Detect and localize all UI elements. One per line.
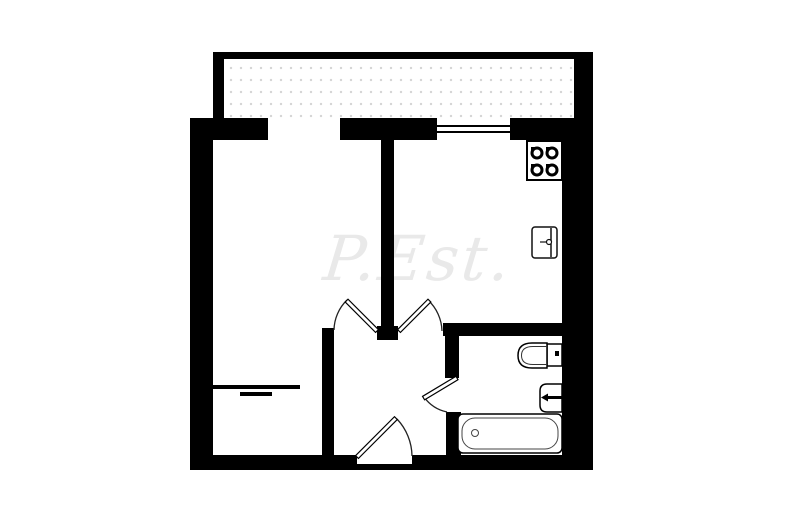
kitchen-sink-icon <box>532 227 557 258</box>
stove-icon <box>527 141 562 180</box>
door-leaf <box>398 299 431 332</box>
bathroom-door <box>423 376 458 412</box>
toilet-icon <box>518 343 562 368</box>
floor-plan: P.Est. <box>0 0 800 520</box>
entrance-door <box>356 417 412 459</box>
door-arc <box>397 419 412 456</box>
door-arc <box>428 300 442 331</box>
bathtub-icon <box>458 414 562 453</box>
door-leaf <box>423 376 458 400</box>
washbasin-icon <box>540 384 562 412</box>
door-leaf <box>345 299 378 332</box>
living-room-door <box>334 299 378 332</box>
kitchen-door <box>398 299 442 332</box>
door-leaf <box>356 417 398 459</box>
door-arc <box>424 397 447 412</box>
door-arc <box>334 300 347 330</box>
